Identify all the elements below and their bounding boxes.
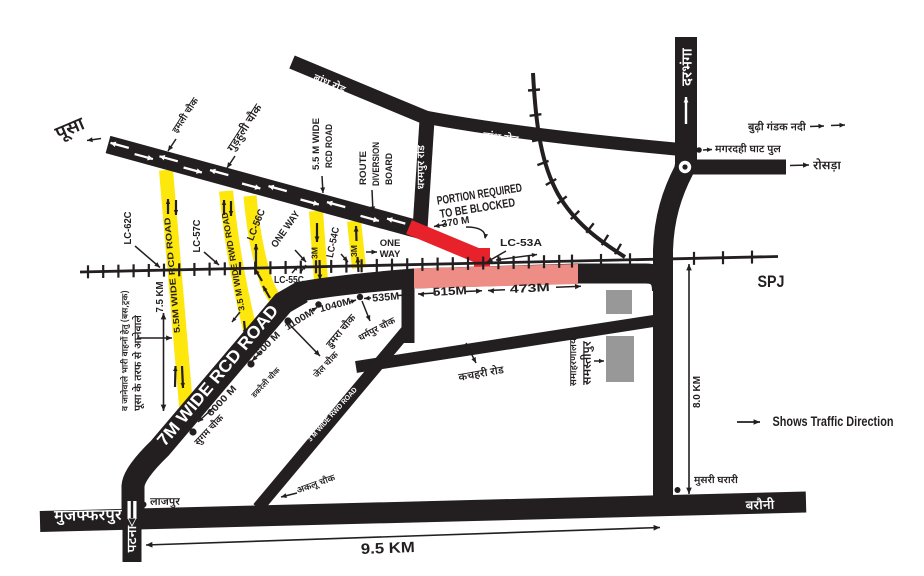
svg-text:RCD ROAD: RCD ROAD xyxy=(324,124,335,168)
svg-text:5.5 M WIDE: 5.5 M WIDE xyxy=(311,118,322,170)
svg-text:7.5 KM: 7.5 KM xyxy=(155,282,166,313)
svg-text:DIVERSION: DIVERSION xyxy=(371,142,382,186)
svg-text:8.0 KM: 8.0 KM xyxy=(691,376,703,408)
svg-text:3M: 3M xyxy=(349,245,359,257)
svg-text:3M: 3M xyxy=(310,247,320,259)
svg-text:515M: 515M xyxy=(433,285,468,299)
svg-text:ONE: ONE xyxy=(380,238,401,249)
svg-text:LC-57C: LC-57C xyxy=(192,220,203,253)
svg-text:Shows Traffic Direction: Shows Traffic Direction xyxy=(773,414,894,429)
svg-text:9.5 KM: 9.5 KM xyxy=(361,539,416,558)
svg-text:WAY: WAY xyxy=(380,249,401,260)
svg-text:LC-53A: LC-53A xyxy=(500,237,542,249)
svg-text:BOARD: BOARD xyxy=(384,153,395,185)
svg-text:LC-62C: LC-62C xyxy=(123,212,134,245)
svg-text:535M: 535M xyxy=(372,290,400,304)
svg-text:SPJ: SPJ xyxy=(758,273,785,291)
svg-text:LC-55C: LC-55C xyxy=(274,274,304,286)
svg-text:473M: 473M xyxy=(510,282,551,296)
svg-text:ROUTE: ROUTE xyxy=(358,151,369,185)
